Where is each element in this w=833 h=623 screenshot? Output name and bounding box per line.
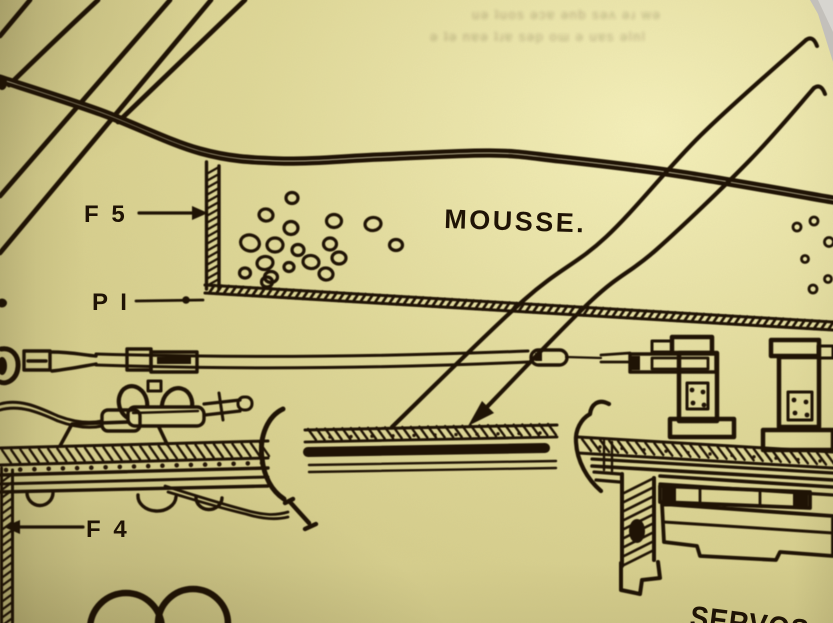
svg-text:F 5: F 5	[84, 201, 128, 228]
svg-text:MOUSSE.: MOUSSE.	[444, 204, 587, 238]
svg-text:uə ʇuos ǝɔɐ ǝnb sǝʌ ǝɹ wǝ: uə ʇuos ǝɔɐ ǝnb sǝʌ ǝɹ wǝ	[472, 7, 661, 22]
svg-text:F 4: F 4	[86, 516, 130, 543]
svg-text:ǝ ʇǝ nɐǝ ʇɹɐ sǝp oɯ ǝ uɐs ǝlnl: ǝ ʇǝ nɐǝ ʇɹɐ sǝp oɯ ǝ uɐs ǝlnl	[430, 29, 646, 44]
svg-text:P I: P I	[92, 289, 130, 316]
